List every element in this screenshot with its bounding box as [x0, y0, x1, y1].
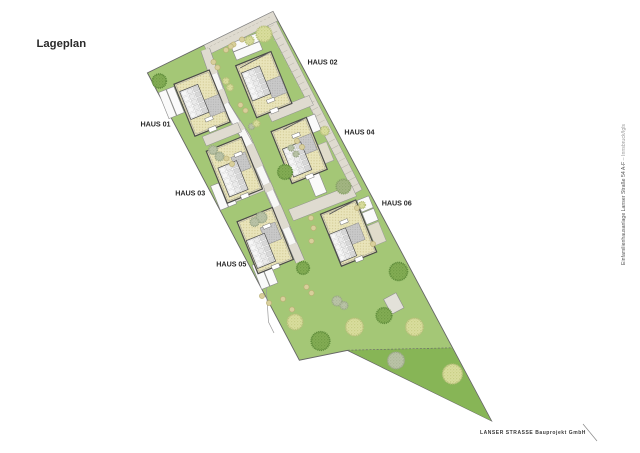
- svg-text:Lageplan: Lageplan: [37, 38, 87, 50]
- svg-text:HAUS 05: HAUS 05: [216, 260, 246, 269]
- svg-text:Einfamilienhausanlage Lanser S: Einfamilienhausanlage Lanser Straße 54 A…: [621, 124, 627, 265]
- svg-text:HAUS 01: HAUS 01: [141, 119, 171, 128]
- svg-text:HAUS 06: HAUS 06: [382, 199, 412, 208]
- svg-text:HAUS 04: HAUS 04: [344, 128, 374, 137]
- svg-text:HAUS 02: HAUS 02: [308, 58, 338, 67]
- svg-text:HAUS 03: HAUS 03: [175, 188, 205, 197]
- svg-text:LANSER STRASSE Bauprojekt GmbH: LANSER STRASSE Bauprojekt GmbH: [480, 430, 586, 436]
